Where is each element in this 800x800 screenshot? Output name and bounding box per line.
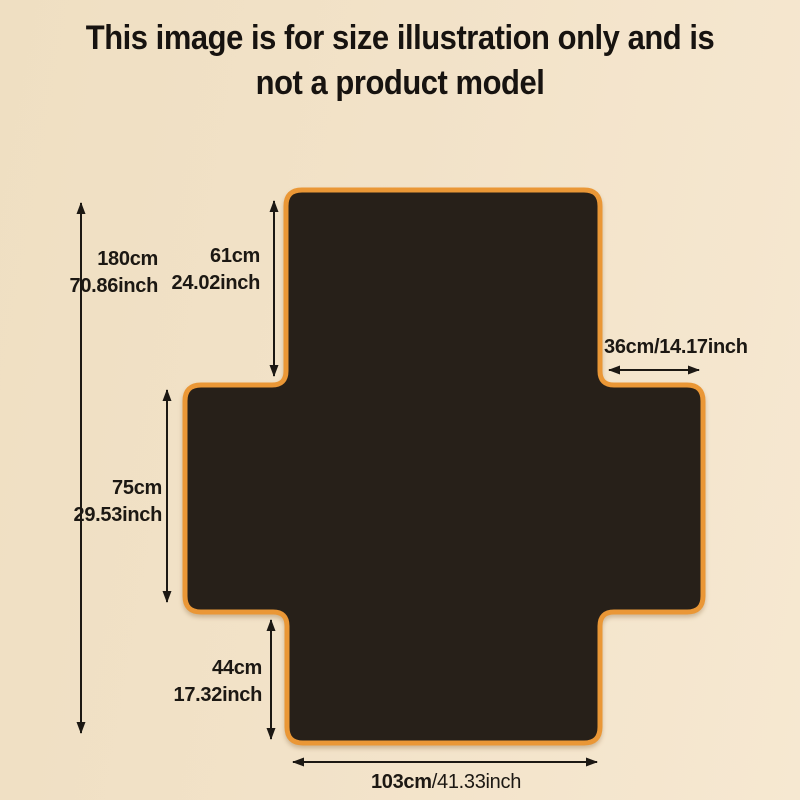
bottom-width-label: 103cm/41.33inch	[292, 769, 600, 796]
middle-section-height-label: 75cm 29.53inch	[12, 475, 162, 529]
bottom-section-height-label: 44cm 17.32inch	[112, 655, 262, 709]
side-width-label: 36cm/14.17inch	[604, 334, 748, 361]
bottom-width-cm: 103cm	[371, 771, 432, 793]
top-section-height-label: 61cm 24.02inch	[110, 243, 260, 297]
bottom-section-cm: 44cm	[112, 655, 262, 682]
bottom-section-inch: 17.32inch	[112, 682, 262, 709]
middle-section-cm: 75cm	[12, 475, 162, 502]
bottom-width-inch: /41.33inch	[432, 771, 521, 793]
top-section-inch: 24.02inch	[110, 270, 260, 297]
sofa-cover-shape	[185, 190, 703, 743]
middle-section-inch: 29.53inch	[12, 502, 162, 529]
top-section-cm: 61cm	[110, 243, 260, 270]
size-illustration: This image is for size illustration only…	[0, 0, 800, 800]
